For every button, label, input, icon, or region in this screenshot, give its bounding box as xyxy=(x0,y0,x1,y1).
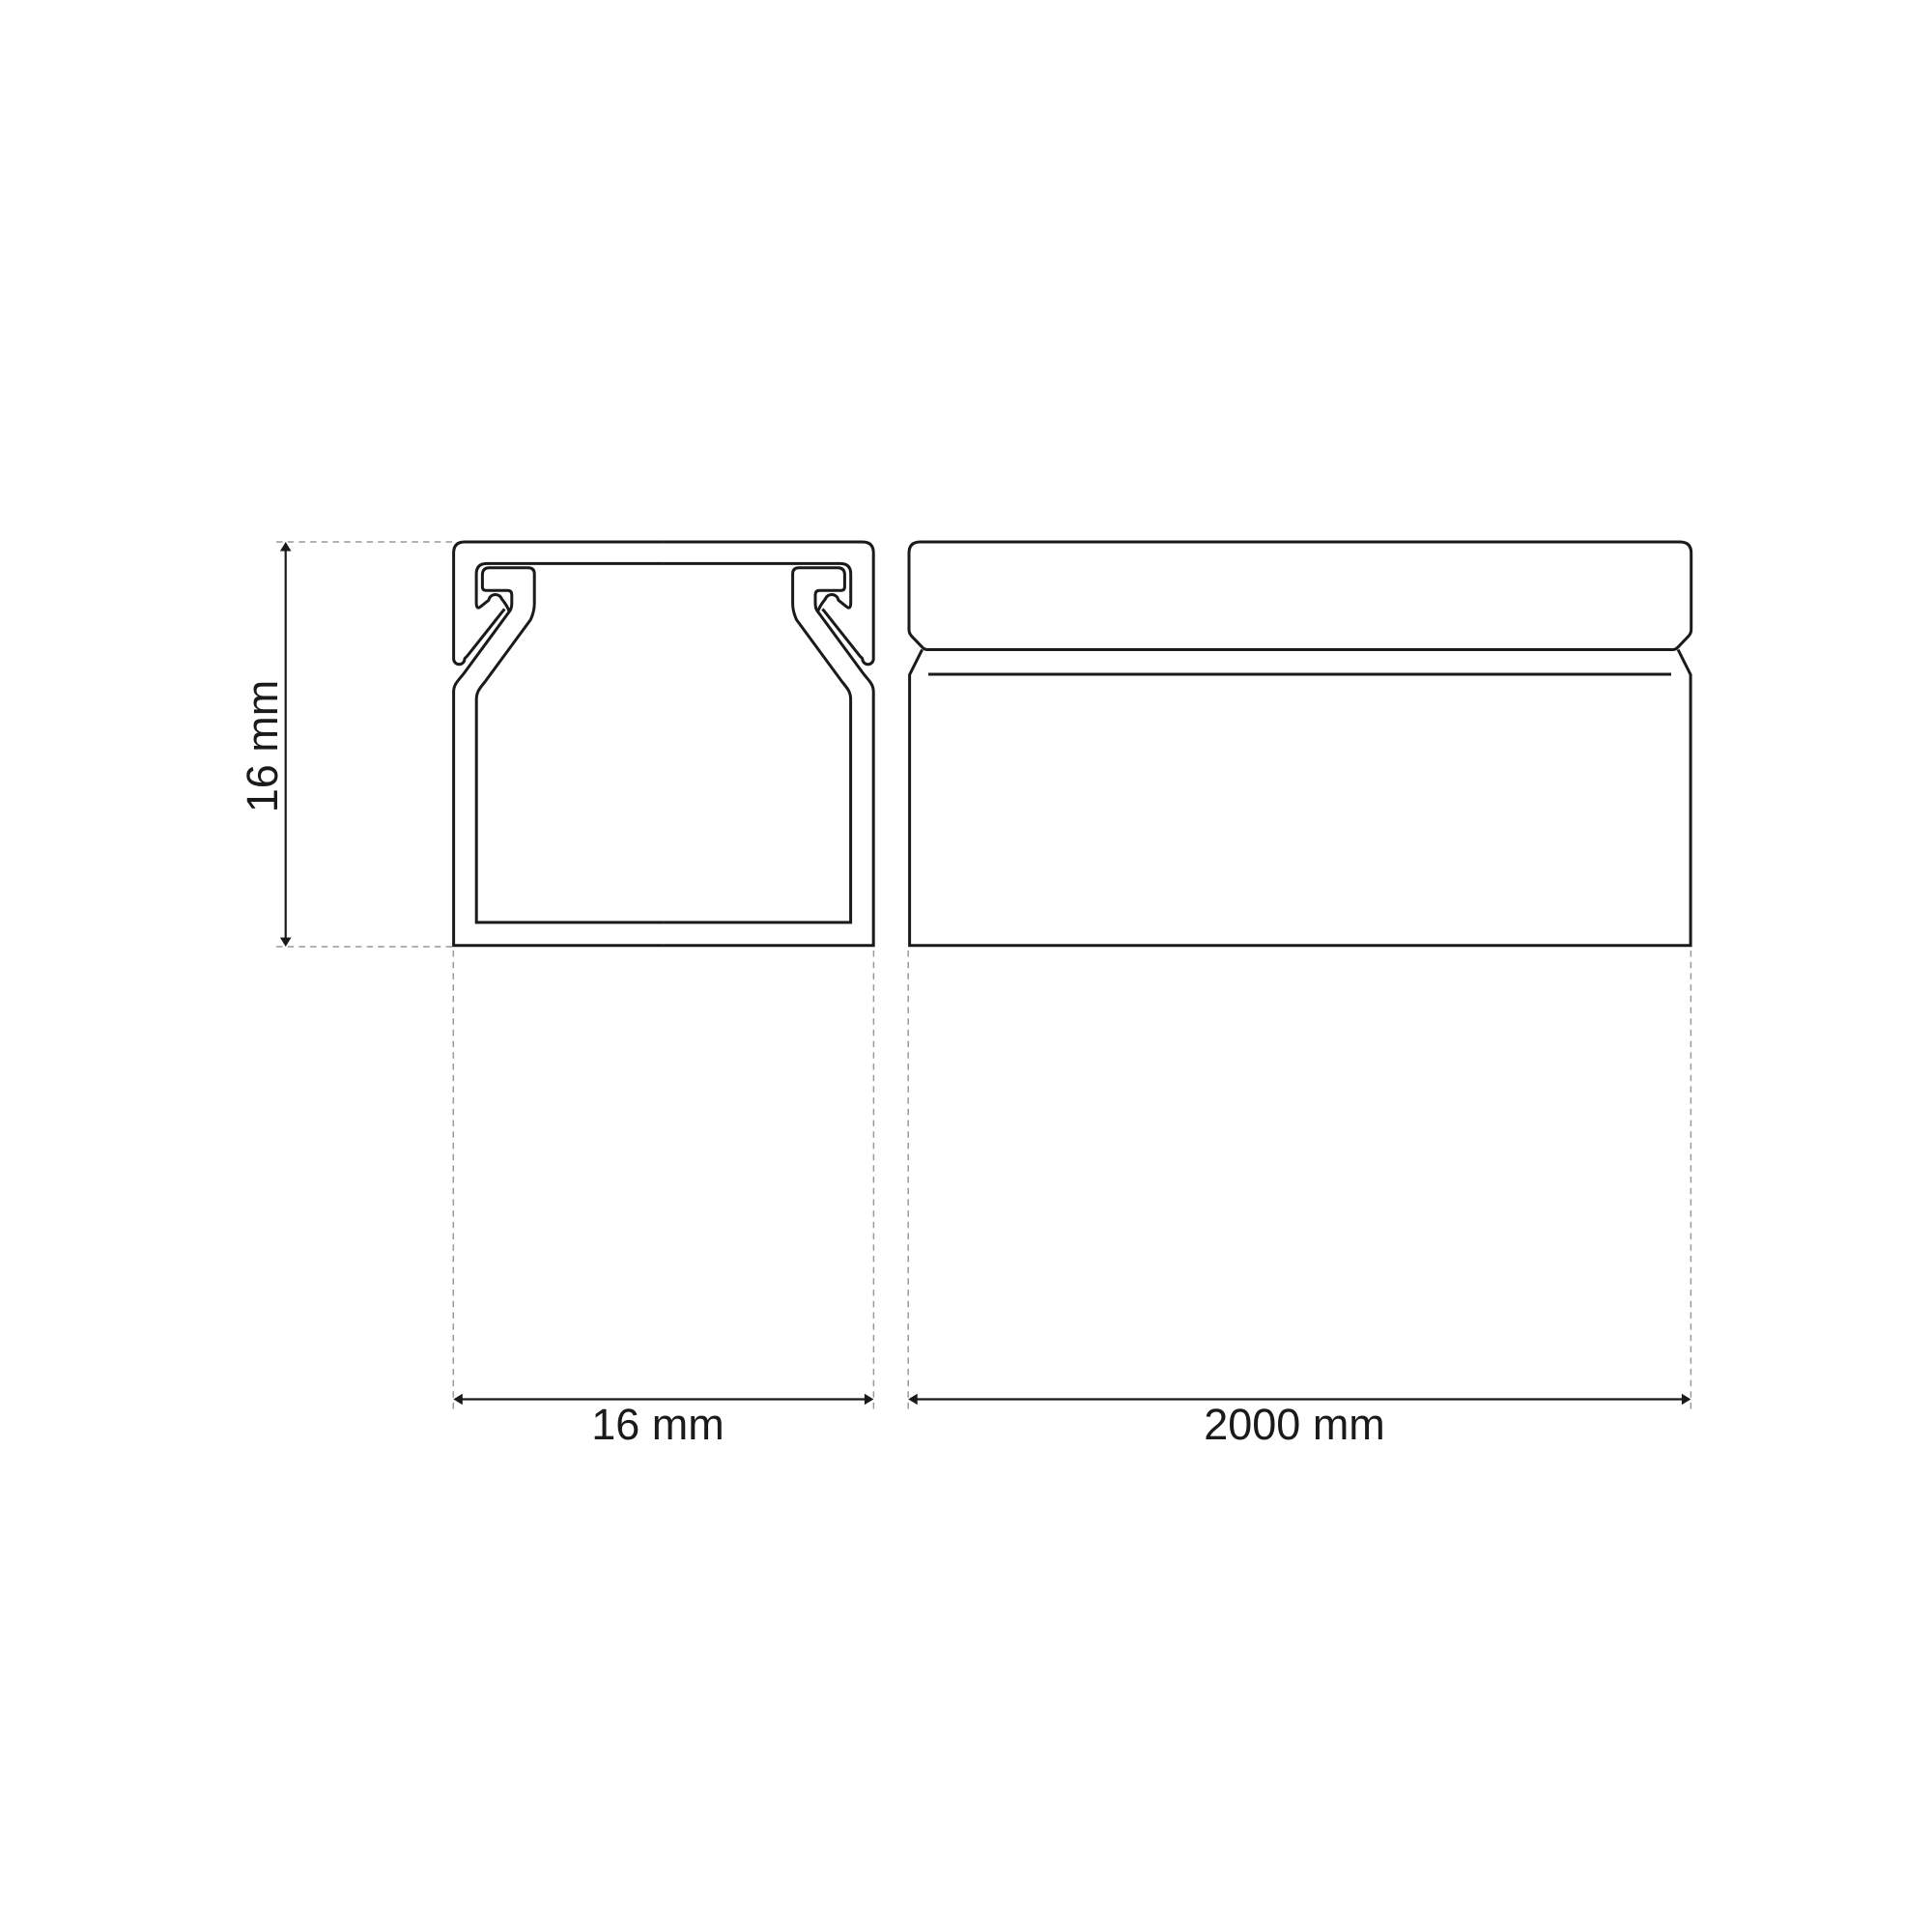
svg-text:16 mm: 16 mm xyxy=(238,680,287,813)
svg-text:16 mm: 16 mm xyxy=(591,1400,724,1449)
svg-text:2000 mm: 2000 mm xyxy=(1204,1400,1385,1449)
